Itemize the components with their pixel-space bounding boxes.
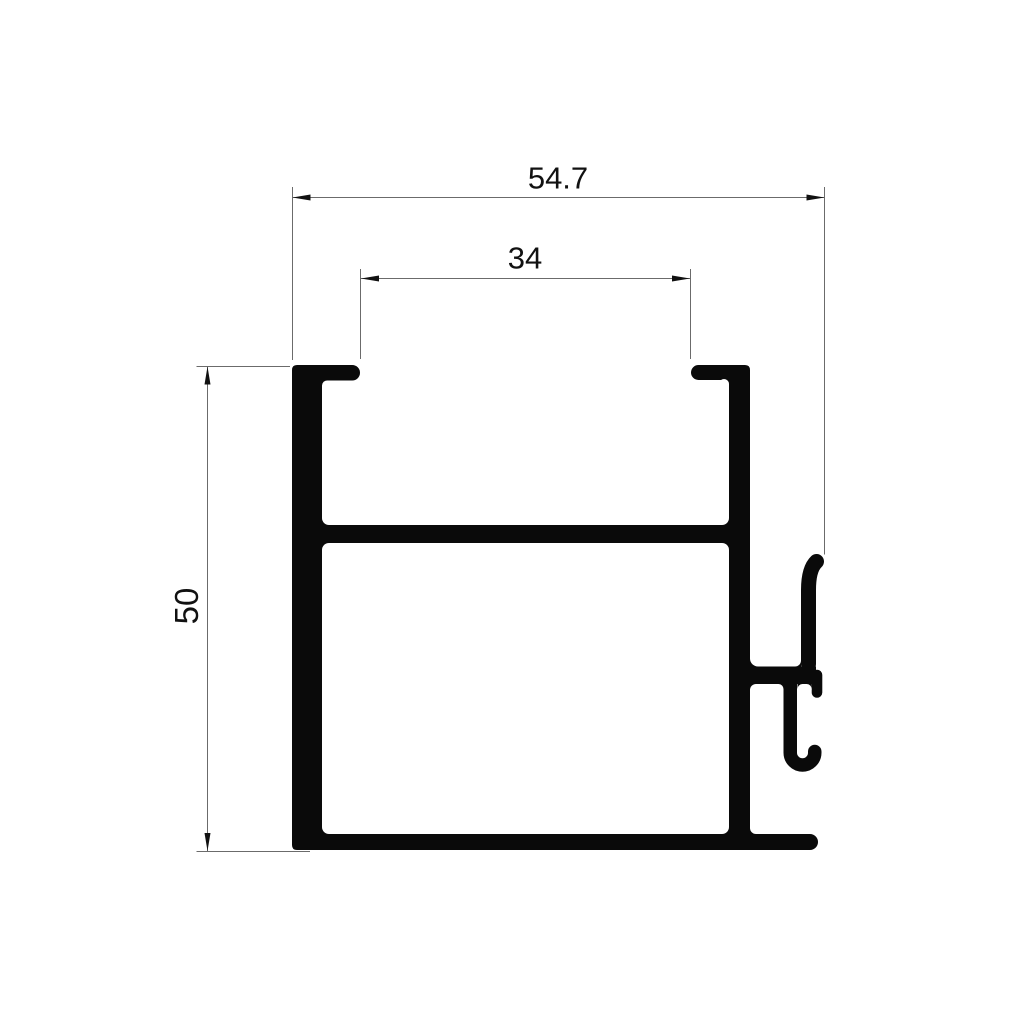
svg-text:34: 34 <box>508 241 542 276</box>
svg-text:54.7: 54.7 <box>528 161 588 196</box>
svg-text:50: 50 <box>168 588 205 625</box>
